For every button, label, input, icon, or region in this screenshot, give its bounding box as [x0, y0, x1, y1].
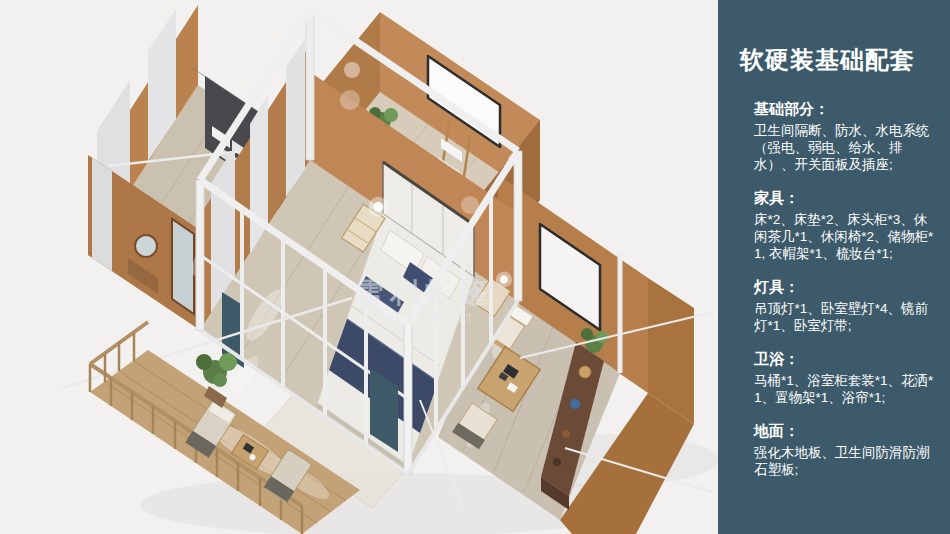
panel-section-furniture: 家具： 床*2、床垫*2、床头柜*3、休闲茶几*1、休闲椅*2、储物柜*1, 衣…	[754, 189, 936, 262]
panel-section-basics: 基础部分： 卫生间隔断、防水、水电系统（强电、弱电、给水、排水）、开关面板及插座…	[754, 100, 936, 173]
section-title: 家具：	[754, 189, 936, 208]
section-body: 卫生间隔断、防水、水电系统（强电、弱电、给水、排水）、开关面板及插座;	[754, 122, 936, 173]
floorplan-render-area: 雪利帐篷 XUELI TENT	[0, 0, 718, 534]
section-title: 卫浴：	[754, 350, 936, 369]
standing-mirror	[172, 219, 194, 314]
panel-section-lighting: 灯具： 吊顶灯*1、卧室壁灯*4、镜前灯*1、卧室灯带;	[754, 278, 936, 334]
section-body: 吊顶灯*1、卧室壁灯*4、镜前灯*1、卧室灯带;	[754, 300, 936, 334]
curtain	[92, 158, 112, 271]
isometric-floorplan-illustration: 雪利帐篷 XUELI TENT	[0, 0, 718, 534]
section-body: 强化木地板、卫生间防滑防潮石塑板;	[754, 444, 936, 478]
watermark-cn: 雪利帐篷	[355, 277, 495, 308]
info-panel: 软硬装基础配套 基础部分： 卫生间隔断、防水、水电系统（强电、弱电、给水、排水）…	[718, 0, 950, 534]
section-body: 马桶*1、浴室柜套装*1、花洒*1、置物架*1、浴帘*1;	[754, 372, 936, 406]
section-body: 床*2、床垫*2、床头柜*3、休闲茶几*1、休闲椅*2、储物柜*1, 衣帽架*1…	[754, 211, 936, 262]
section-title: 地面：	[754, 422, 936, 441]
section-title: 灯具：	[754, 278, 936, 297]
panel-section-flooring: 地面： 强化木地板、卫生间防滑防潮石塑板;	[754, 422, 936, 478]
wall-lamp-glow	[344, 62, 360, 78]
panel-title: 软硬装基础配套	[740, 44, 936, 76]
slide: 雪利帐篷 XUELI TENT 软硬装基础配套 基础部分： 卫生间隔断、防水、水…	[0, 0, 950, 534]
panel-section-bathroom: 卫浴： 马桶*1、浴室柜套装*1、花洒*1、置物架*1、浴帘*1;	[754, 350, 936, 406]
watermark: 雪利帐篷 XUELI TENT	[355, 277, 495, 324]
section-title: 基础部分：	[754, 100, 936, 119]
wall-lamp-glow	[340, 90, 360, 110]
watermark-en: XUELI TENT	[373, 312, 476, 324]
